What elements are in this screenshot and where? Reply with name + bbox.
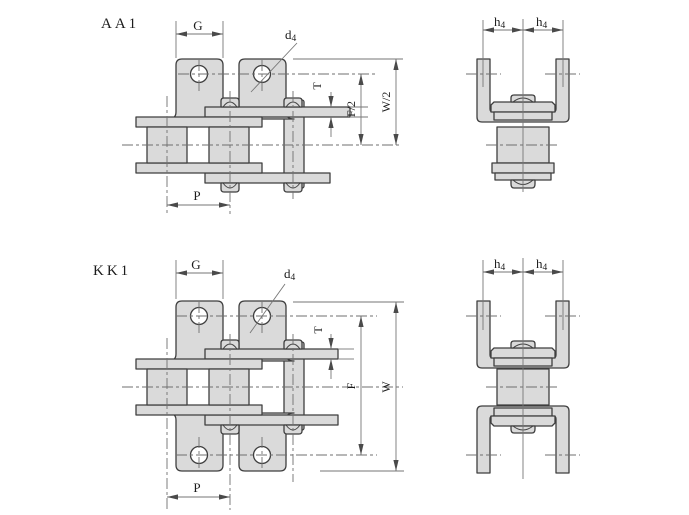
aa1-end-view: h4 h4 <box>466 14 580 192</box>
aa1-side-parts <box>136 59 350 192</box>
link-plate <box>136 359 262 369</box>
link-plate <box>136 117 262 127</box>
h4-sub: 4 <box>543 21 548 31</box>
h4-left-dimension-label: h4 <box>494 256 506 273</box>
t-dimension-label: T <box>310 82 324 90</box>
aa1-title: AA1 <box>101 16 139 32</box>
g-dimension-label: G <box>193 18 202 33</box>
d4-dimension-label: d4 <box>285 27 297 44</box>
h4-sub: 4 <box>543 263 548 273</box>
t-dimension-label: T <box>311 326 325 334</box>
h4-right-dimension-label: h4 <box>536 14 548 31</box>
kk1-side-view: KK1 G d4 T F W P <box>93 257 404 510</box>
kk1-title: KK1 <box>93 263 131 279</box>
d4-dimension-label: d4 <box>284 266 296 283</box>
kk1-side-parts <box>136 301 338 471</box>
kk1-end-labels: h4 h4 <box>494 256 548 273</box>
w-half-dimension-label: W/2 <box>379 92 393 113</box>
outer-link-plate <box>205 415 338 425</box>
h4-right-dimension-label: h4 <box>536 256 548 273</box>
drawing-canvas: AA1 G d4 T F/2 W/2 P <box>0 0 689 515</box>
aa1-end-labels: h4 h4 <box>494 14 548 31</box>
outer-link-plate <box>205 173 330 183</box>
d4-sub: 4 <box>292 34 297 44</box>
f-half-dimension-label: F/2 <box>344 101 358 117</box>
link-plate <box>136 405 262 415</box>
g-dimension-label: G <box>191 257 200 272</box>
link-plate <box>136 163 262 173</box>
aa1-side-view: AA1 G d4 T F/2 W/2 P <box>101 16 403 214</box>
chain-attachment-technical-drawing: AA1 G d4 T F/2 W/2 P <box>0 0 689 515</box>
w-dimension-label: W <box>379 381 393 393</box>
h4-sub: 4 <box>501 21 506 31</box>
f-dimension-label: F <box>344 382 358 389</box>
h4-sub: 4 <box>501 263 506 273</box>
d4-sub: 4 <box>291 273 296 283</box>
p-dimension-label: P <box>193 188 200 203</box>
outer-link-plate <box>205 107 350 117</box>
kk1-end-view: h4 h4 <box>466 256 580 479</box>
p-dimension-label: P <box>193 480 200 495</box>
outer-link-plate <box>205 349 338 359</box>
h4-left-dimension-label: h4 <box>494 14 506 31</box>
